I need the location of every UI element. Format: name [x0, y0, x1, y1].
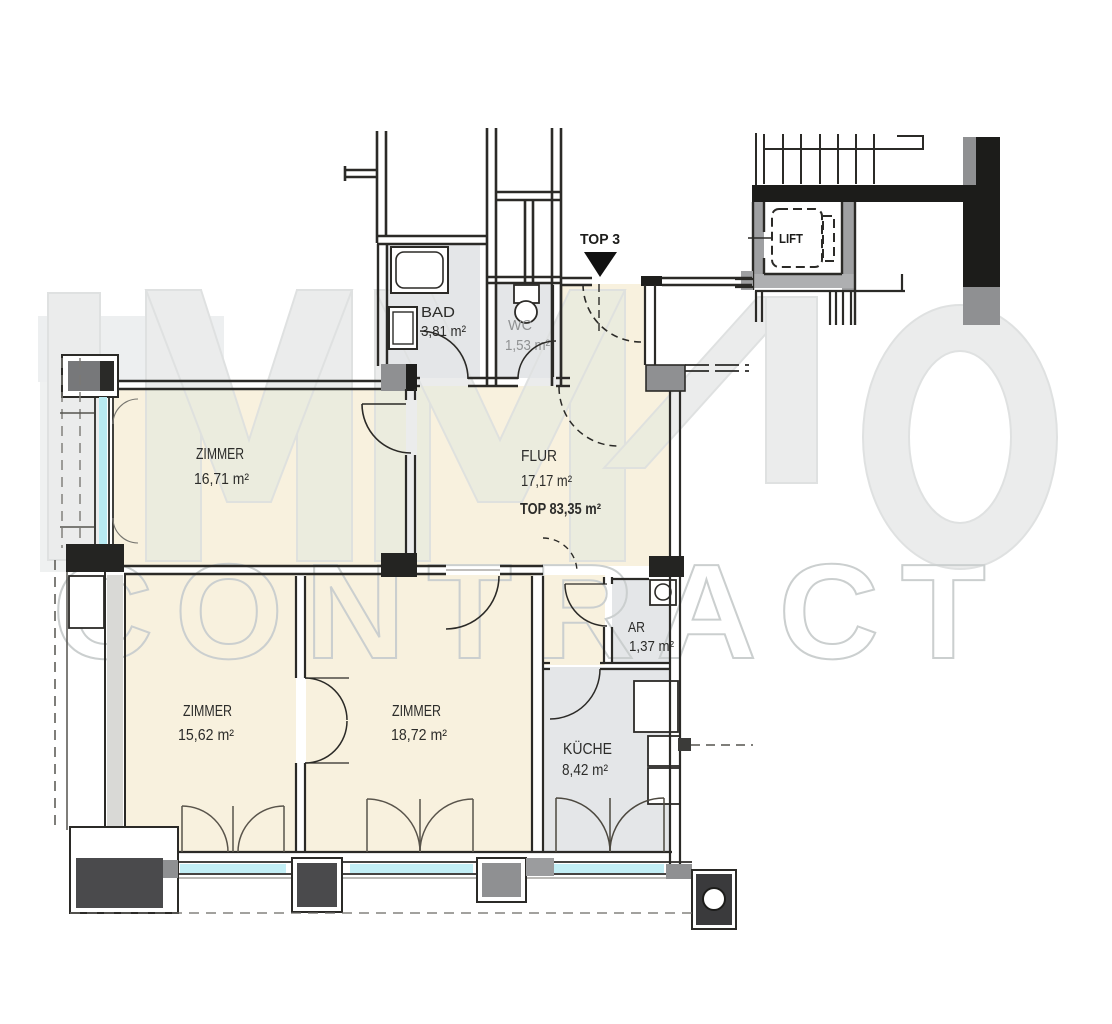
svg-text:TOP 83,35 m²: TOP 83,35 m²: [520, 501, 601, 518]
svg-text:16,71 m²: 16,71 m²: [194, 471, 249, 488]
svg-text:ZIMMER: ZIMMER: [183, 703, 232, 720]
svg-text:ZIMMER: ZIMMER: [392, 703, 441, 720]
svg-text:17,17 m²: 17,17 m²: [521, 473, 572, 490]
svg-text:AR: AR: [628, 620, 645, 636]
svg-text:CONTRACT: CONTRACT: [53, 536, 1008, 687]
svg-text:18,72 m²: 18,72 m²: [391, 727, 447, 744]
svg-text:WC: WC: [508, 317, 532, 334]
svg-text:1,37 m²: 1,37 m²: [629, 639, 674, 655]
svg-text:LIFT: LIFT: [779, 232, 803, 246]
svg-text:ZIMMER: ZIMMER: [196, 446, 244, 463]
svg-text:1,53 m²: 1,53 m²: [505, 337, 550, 354]
svg-text:TOP 3: TOP 3: [580, 231, 620, 248]
svg-text:KÜCHE: KÜCHE: [563, 740, 612, 758]
svg-text:8,42 m²: 8,42 m²: [562, 762, 608, 779]
svg-text:FLUR: FLUR: [521, 448, 557, 465]
svg-text:15,62 m²: 15,62 m²: [178, 727, 234, 744]
svg-text:BAD: BAD: [421, 304, 455, 321]
